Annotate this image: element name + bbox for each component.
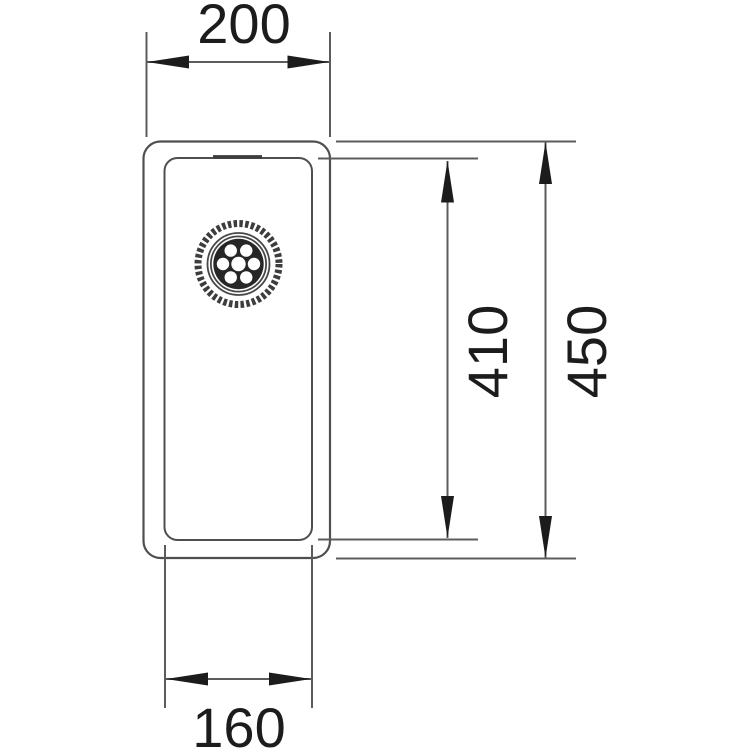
dimension-outer-width-top: 200 (147, 0, 331, 137)
sink-technical-drawing: 200 410 450 160 (0, 0, 750, 750)
arrowhead-up-icon (441, 161, 454, 203)
sink-outer-outline (144, 142, 331, 559)
arrowhead-right-icon (288, 56, 330, 69)
dimension-label-450: 450 (555, 305, 618, 398)
arrowhead-left-icon (147, 56, 189, 69)
dimension-inner-depth-right: 410 (318, 159, 519, 540)
arrowhead-up-icon (539, 142, 552, 184)
dimension-label-160: 160 (192, 696, 285, 750)
arrowhead-down-icon (441, 496, 454, 538)
arrowhead-down-icon (539, 516, 552, 558)
drain-center-hub (231, 257, 245, 271)
dimension-label-200: 200 (197, 0, 290, 55)
dimension-inner-width-bottom: 160 (165, 545, 312, 750)
sink-body (144, 142, 331, 559)
drawing-canvas: 200 410 450 160 (0, 0, 750, 750)
arrowhead-left-icon (166, 673, 208, 686)
dimension-label-410: 410 (456, 305, 519, 398)
sink-inner-bowl-outline (165, 158, 313, 540)
drain-strainer (198, 224, 279, 305)
arrowhead-right-icon (269, 673, 311, 686)
